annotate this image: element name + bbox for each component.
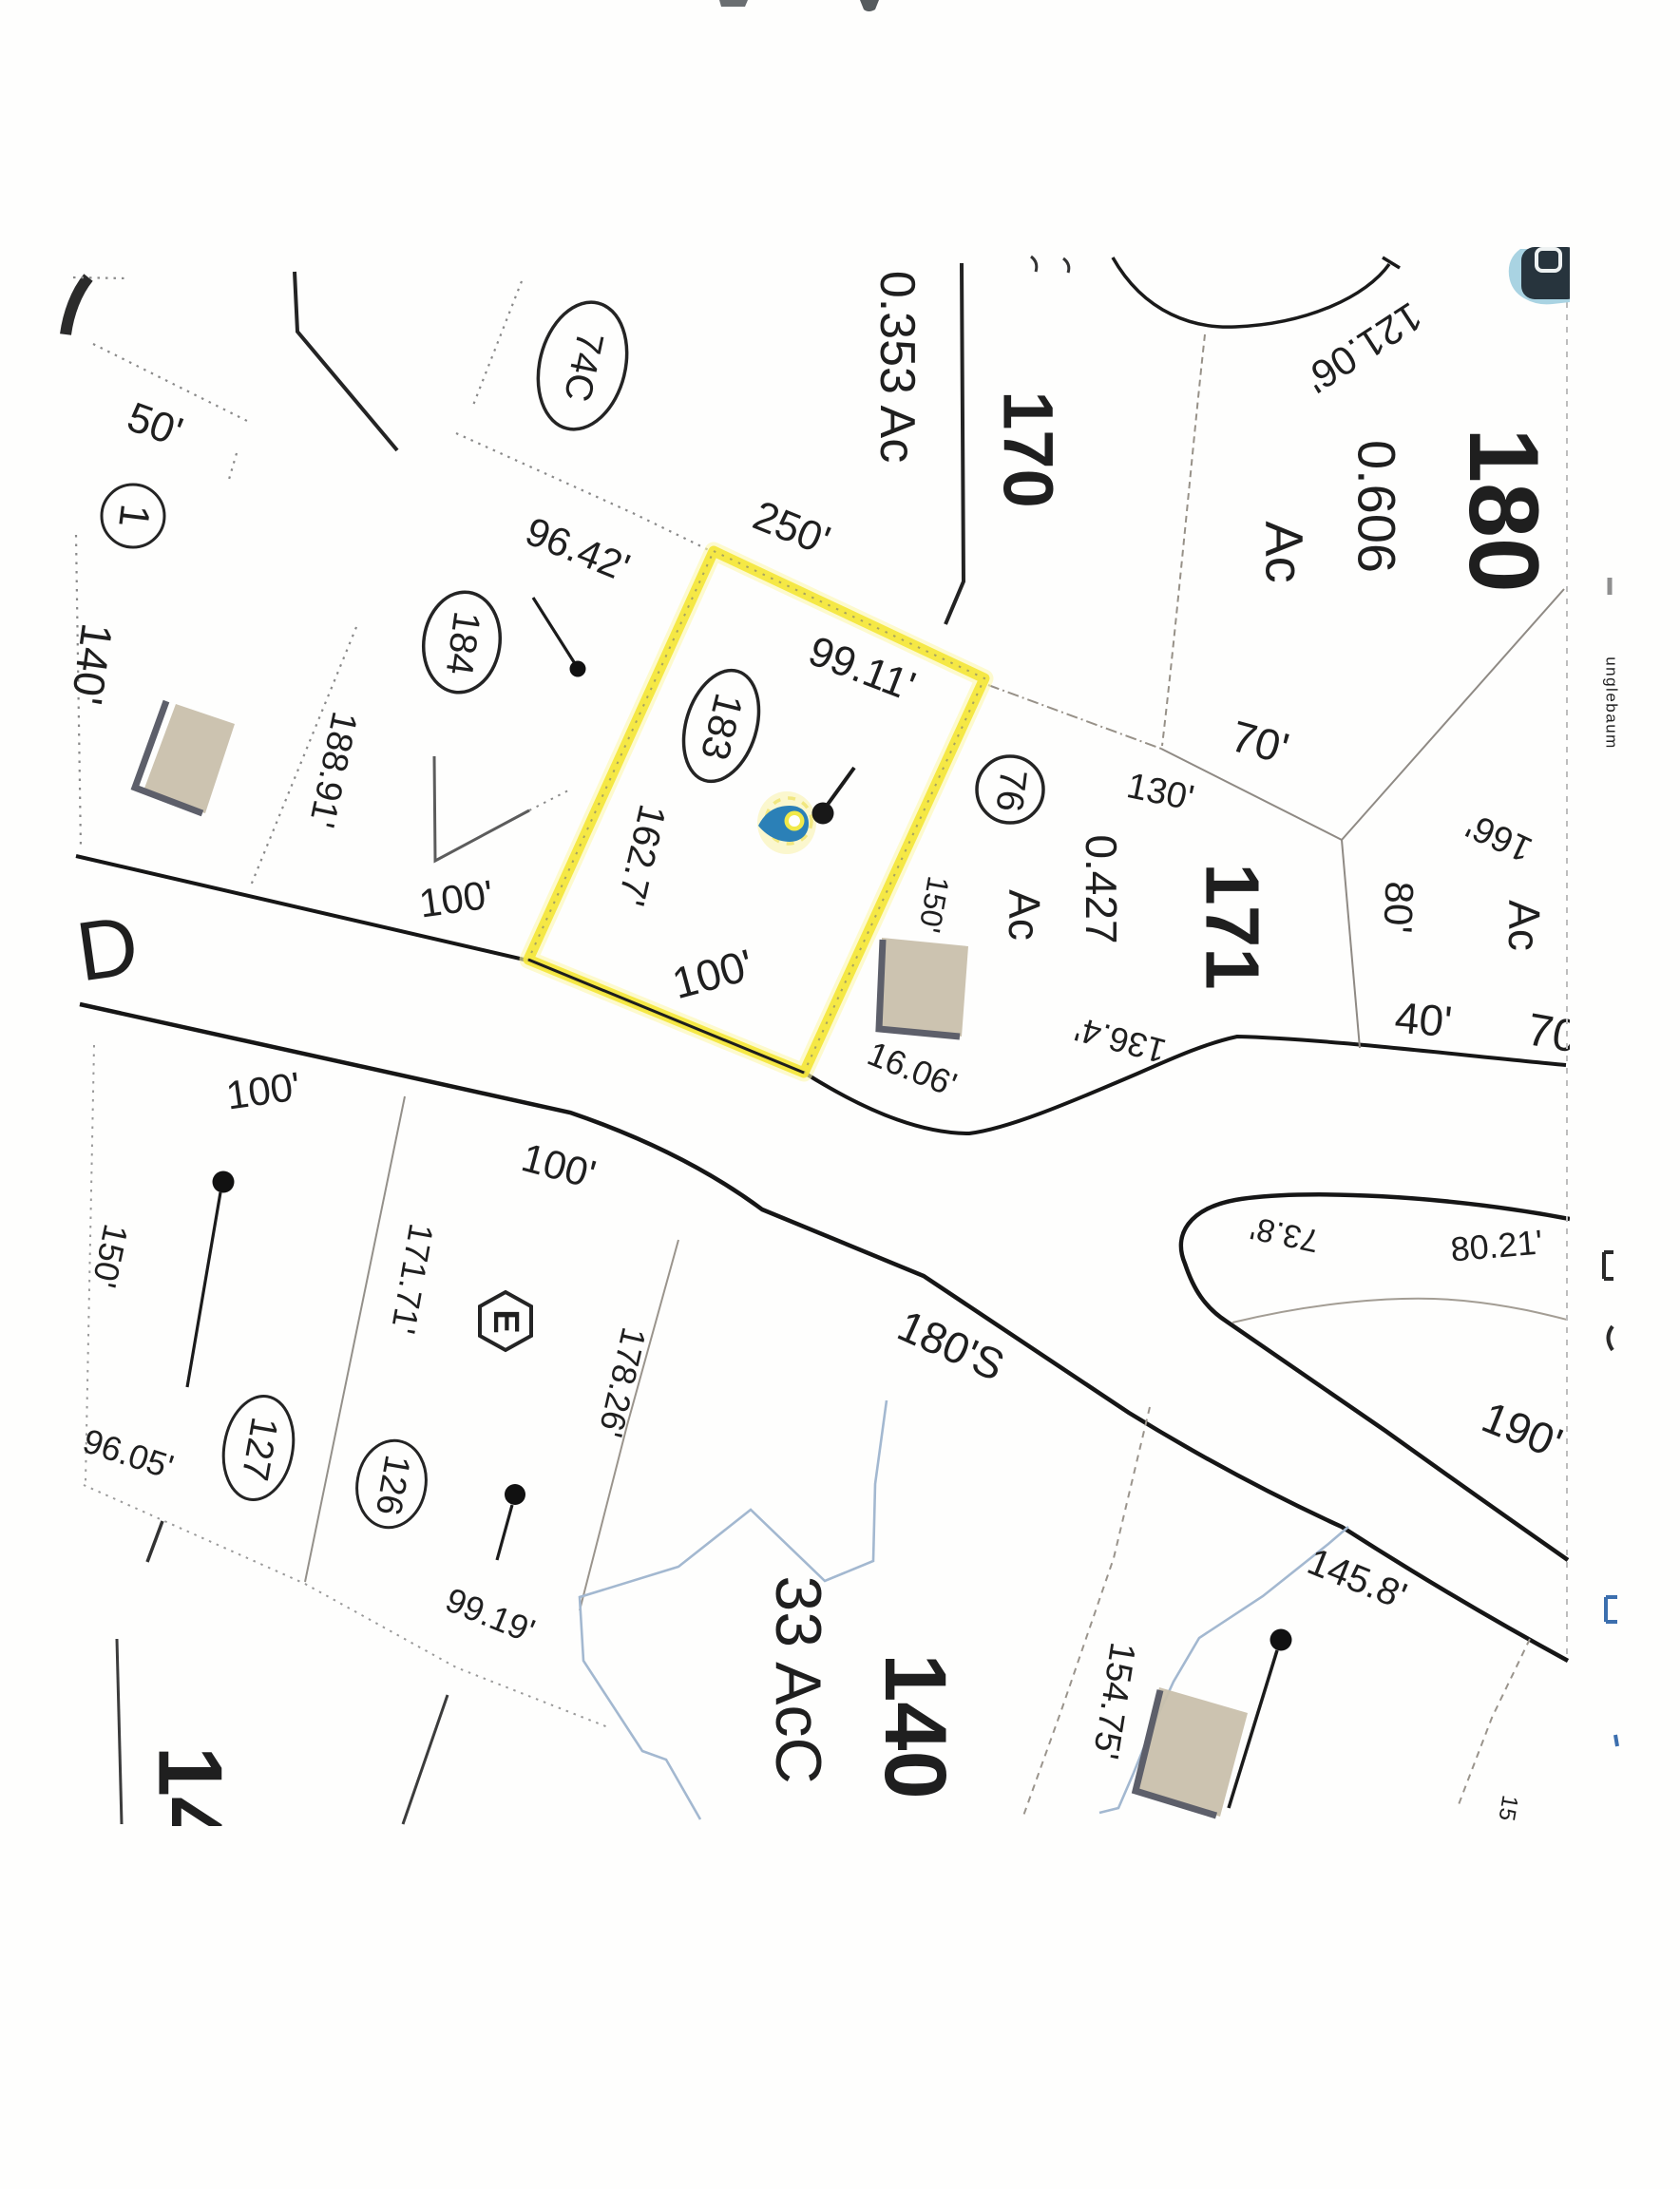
- svg-text:0.427: 0.427: [1077, 834, 1126, 943]
- svg-text:171: 171: [1191, 863, 1275, 989]
- svg-text:Ac: Ac: [1000, 889, 1049, 941]
- svg-text:40': 40': [1393, 992, 1454, 1046]
- svg-text:170: 170: [989, 390, 1068, 507]
- svg-text:0.606: 0.606: [1347, 440, 1407, 573]
- svg-text:unglebaum: unglebaum: [1603, 657, 1621, 750]
- svg-text:76: 76: [987, 767, 1034, 814]
- svg-text:184: 184: [438, 609, 488, 677]
- svg-text:Ac: Ac: [1255, 521, 1315, 582]
- svg-text:15: 15: [1493, 1794, 1522, 1823]
- svg-text:Ac: Ac: [1499, 900, 1549, 951]
- svg-text:140: 140: [867, 1653, 964, 1799]
- svg-text:E: E: [486, 1309, 525, 1333]
- svg-text:180: 180: [1448, 428, 1558, 593]
- svg-text:33 AcC: 33 AcC: [762, 1575, 834, 1783]
- svg-text:0.353 Ac: 0.353 Ac: [869, 271, 925, 463]
- svg-text:80': 80': [1376, 881, 1422, 934]
- svg-text:80.21': 80.21': [1449, 1222, 1544, 1268]
